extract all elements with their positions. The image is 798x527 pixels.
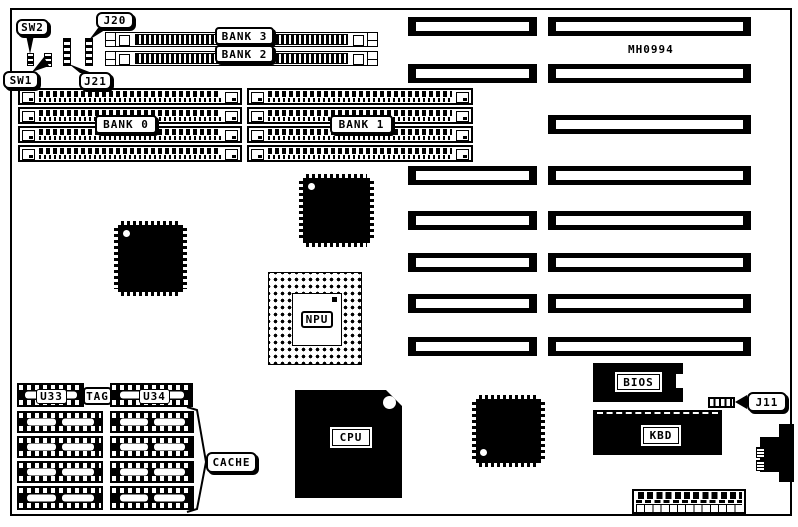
- cache-brace: [187, 407, 206, 512]
- j20-label: J20: [104, 14, 127, 27]
- j11-label: J11: [756, 396, 779, 409]
- j11-leader: [735, 395, 747, 409]
- bank2-callout: BANK 2: [215, 45, 274, 63]
- sw2-leader: [26, 35, 34, 54]
- bank0-callout: BANK 0: [95, 115, 157, 134]
- j21-callout: J21: [79, 72, 112, 90]
- j20-leader: [89, 28, 108, 40]
- sw2-label: SW2: [21, 21, 44, 34]
- bank3-label: BANK 3: [222, 30, 268, 43]
- bank1-label: BANK 1: [339, 118, 385, 131]
- bank1-callout: BANK 1: [330, 115, 393, 134]
- bank3-callout: BANK 3: [215, 27, 274, 45]
- sw1-callout: SW1: [3, 71, 39, 89]
- j11-callout: J11: [747, 392, 787, 412]
- cache-label: CACHE: [212, 456, 250, 469]
- leader-lines-overlay: [0, 0, 798, 527]
- sw1-leader: [32, 57, 49, 72]
- bank0-label: BANK 0: [103, 118, 149, 131]
- sw2-callout: SW2: [16, 19, 49, 36]
- sw1-label: SW1: [10, 74, 33, 87]
- motherboard-diagram: SW2 J20 SW1 J21 BANK 3 BANK 2 BANK 0 BAN…: [0, 0, 798, 527]
- cache-callout: CACHE: [206, 452, 257, 473]
- j20-callout: J20: [96, 12, 134, 29]
- j21-label: J21: [84, 75, 107, 88]
- bank2-label: BANK 2: [222, 48, 268, 61]
